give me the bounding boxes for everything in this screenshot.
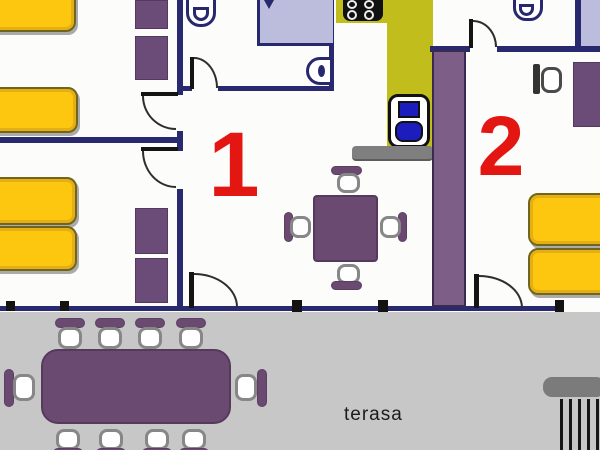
- bed: [528, 248, 600, 295]
- door-arc: [473, 20, 497, 47]
- door-arc: [194, 273, 238, 307]
- door-arc: [142, 151, 176, 188]
- chair-icon: [13, 374, 35, 401]
- burner-icon: [364, 0, 374, 9]
- wall-post: [555, 300, 564, 312]
- wardrobe: [135, 36, 168, 80]
- wardrobe: [573, 62, 600, 127]
- chair-icon: [56, 429, 80, 450]
- stairs-icon: [596, 399, 599, 450]
- chair-icon: [138, 327, 162, 349]
- stairs-icon: [569, 399, 572, 450]
- fridge-top-icon: [398, 101, 420, 118]
- stairs-landing: [543, 377, 600, 397]
- terrace-label: terasa: [344, 404, 403, 426]
- chair-icon: [145, 429, 169, 450]
- bed: [0, 226, 77, 271]
- wall: [497, 46, 600, 52]
- bed: [0, 0, 76, 32]
- sink-drain-icon: [318, 65, 325, 77]
- stairs-icon: [560, 399, 563, 450]
- chair-icon: [98, 327, 122, 349]
- wall-post: [6, 301, 15, 311]
- floor-plan: 1 2 terasa: [0, 0, 600, 450]
- wardrobe: [135, 0, 168, 29]
- room-2-label: 2: [472, 114, 530, 180]
- kitchen-counter-bar: [352, 146, 433, 161]
- stairs-icon: [578, 399, 581, 450]
- chair-icon: [182, 429, 206, 450]
- shower-icon: [581, 0, 600, 46]
- chair-icon: [290, 216, 311, 238]
- chair-icon: [235, 374, 257, 401]
- chair-icon: [58, 327, 82, 349]
- wall: [177, 189, 183, 311]
- wall: [218, 86, 334, 91]
- stove-icon: [343, 0, 383, 21]
- burner-icon: [347, 0, 357, 9]
- stairs-icon: [587, 399, 590, 450]
- burner-icon: [347, 10, 357, 20]
- door-arc: [194, 57, 218, 88]
- wall-post: [378, 300, 388, 312]
- chair-icon: [380, 216, 401, 238]
- door-arc: [479, 275, 523, 308]
- wardrobe: [135, 208, 168, 254]
- sink-icon: [541, 67, 562, 93]
- door-arc: [142, 96, 176, 130]
- wall-post: [292, 300, 302, 312]
- bed: [528, 193, 600, 246]
- chair-icon: [257, 369, 267, 407]
- wall: [0, 137, 179, 143]
- sink-bracket-icon: [533, 64, 540, 94]
- fridge-icon: [388, 94, 430, 148]
- burner-icon: [364, 10, 374, 20]
- chair-icon: [331, 281, 362, 290]
- chair-icon: [179, 327, 203, 349]
- wall-post: [60, 301, 69, 311]
- bed: [0, 87, 78, 133]
- fridge-bottom-icon: [395, 121, 423, 142]
- wardrobe: [135, 258, 168, 303]
- wall: [177, 0, 183, 95]
- shower-arrow-icon: [264, 0, 274, 9]
- chair-icon: [99, 429, 123, 450]
- bed: [0, 177, 77, 225]
- chair-icon: [337, 173, 360, 193]
- terrace-table: [41, 349, 231, 424]
- room-1-label: 1: [203, 130, 265, 202]
- dining-table: [313, 195, 378, 262]
- partition-wall: [432, 50, 466, 307]
